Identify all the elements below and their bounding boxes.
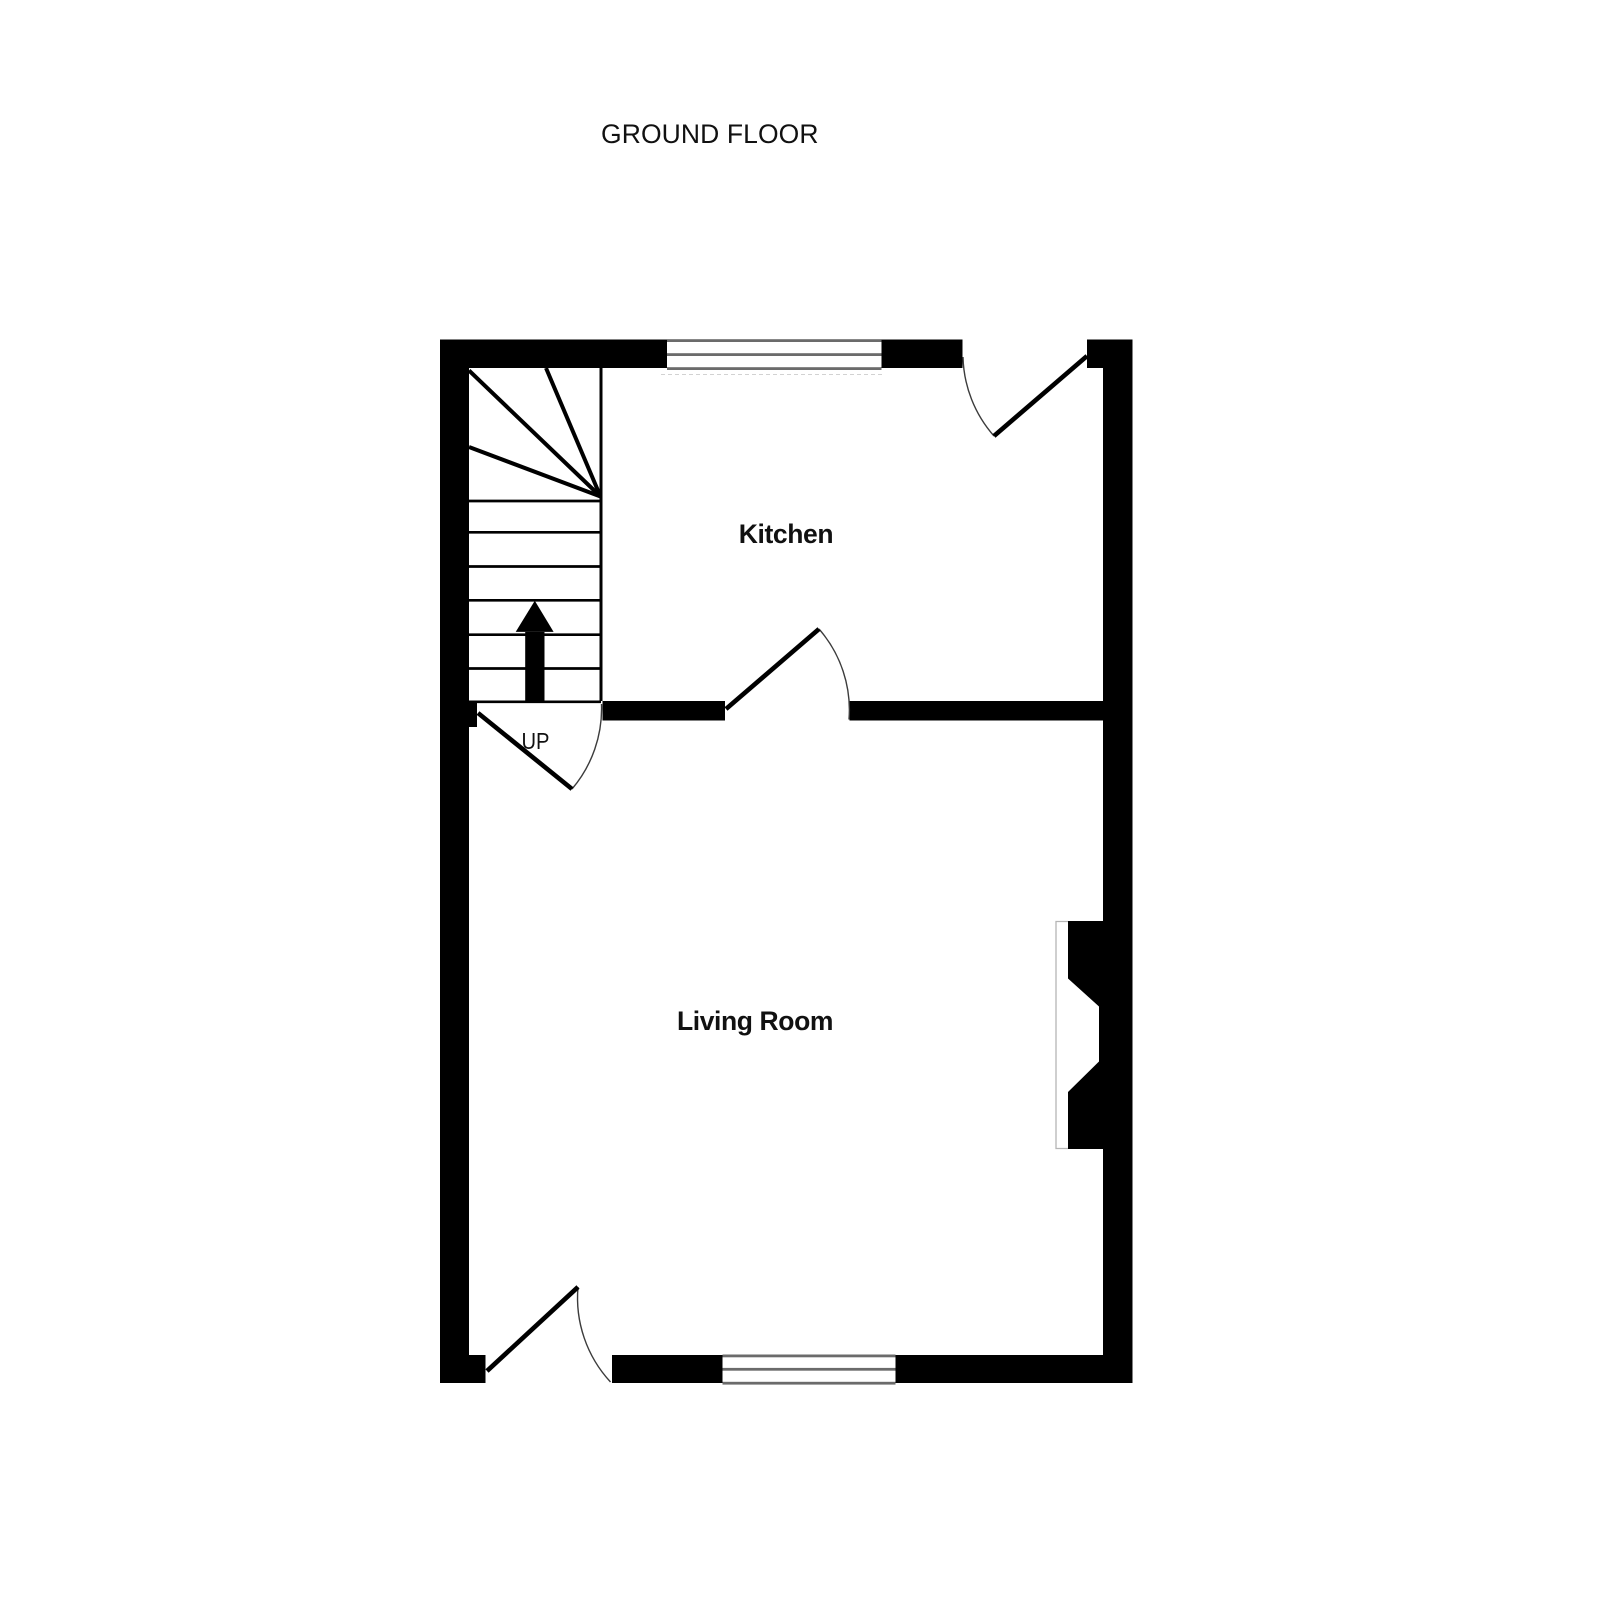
svg-text:UP: UP (522, 728, 550, 754)
svg-text:Kitchen: Kitchen (739, 519, 833, 549)
svg-text:GROUND FLOOR: GROUND FLOOR (601, 119, 819, 149)
svg-text:Living Room: Living Room (677, 1006, 833, 1036)
